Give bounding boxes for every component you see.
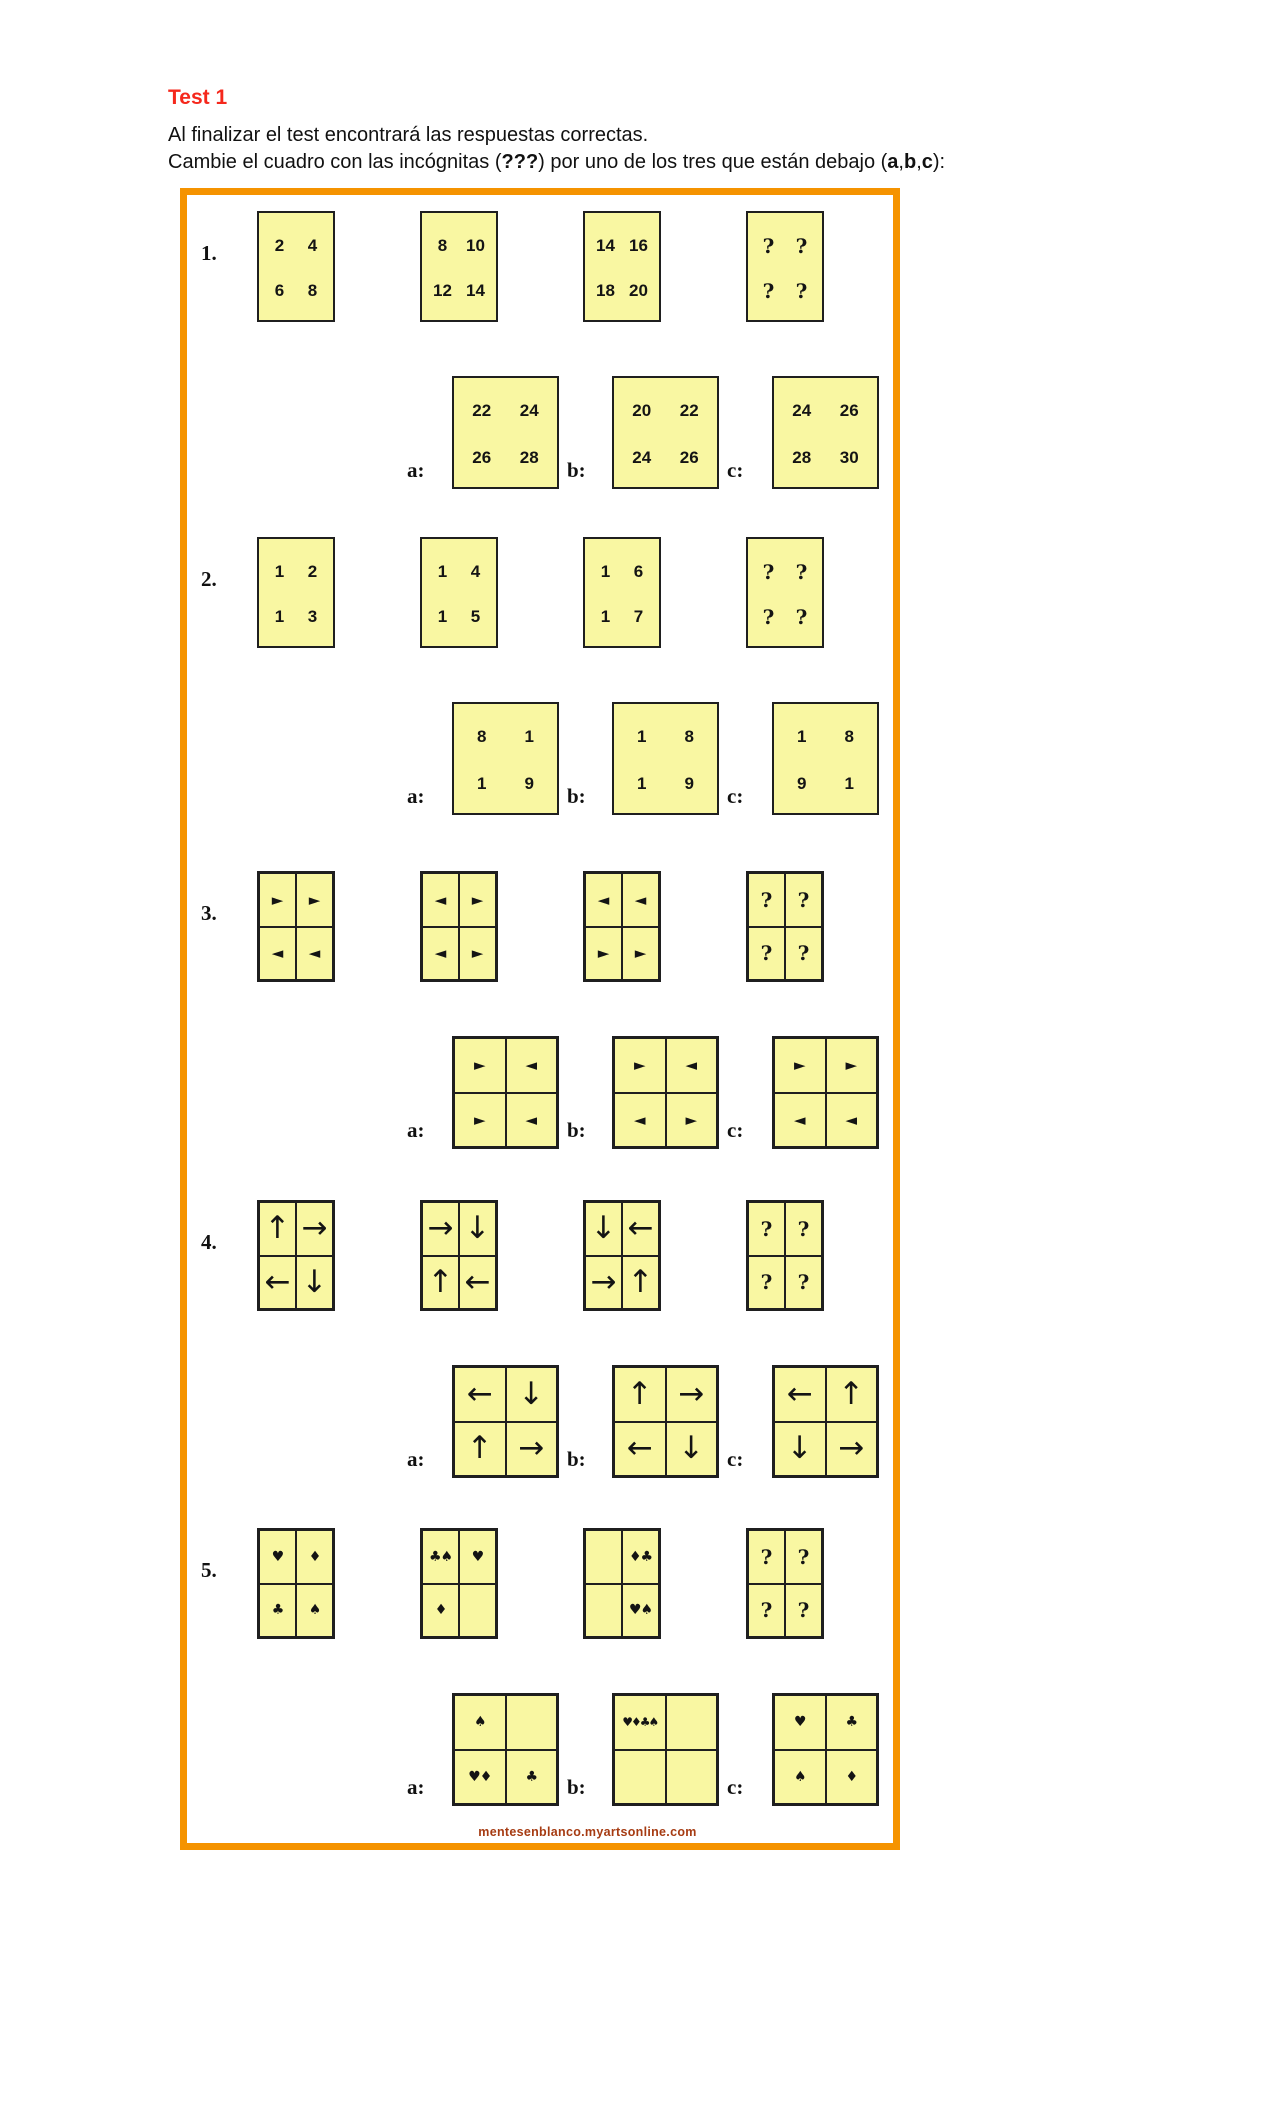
option-label: c: xyxy=(727,1775,767,1800)
grid-cell: ← xyxy=(454,1367,506,1422)
grid-cell: ? xyxy=(785,223,818,269)
grid-cell: ? xyxy=(752,269,785,315)
grid-cell: 14 xyxy=(459,269,492,315)
sequence-grid: ►►◄◄ xyxy=(257,871,335,982)
grid-cell: 30 xyxy=(826,435,874,482)
grid-cell: ► xyxy=(454,1038,506,1093)
sequence-grid: ↑→←↓ xyxy=(257,1200,335,1311)
grid-cell: ? xyxy=(785,1256,822,1310)
sequence-grid: ↓←→↑ xyxy=(583,1200,661,1311)
option-label: c: xyxy=(727,784,767,809)
instruction-line2-post: ): xyxy=(933,151,945,173)
grid-cell: ◄ xyxy=(506,1093,558,1148)
grid-cell: ► xyxy=(622,927,659,981)
grid-cell: ♣ xyxy=(259,1584,296,1638)
grid-cell: 2 xyxy=(296,549,329,595)
grid-cell: 1 xyxy=(618,761,666,808)
grid-cell: ♠ xyxy=(774,1750,826,1805)
puzzle-4: 4.↑→←↓→↓↑←↓←→↑????a:←↓↑→b:↑→←↓c:←↑↓→ xyxy=(187,1200,893,1478)
option-grid: ►►◄◄ xyxy=(772,1036,879,1149)
grid-cell: 8 xyxy=(426,223,459,269)
option-grid: 24262830 xyxy=(772,376,879,489)
letter-c: c xyxy=(922,151,933,173)
grid-cell: ? xyxy=(748,1256,785,1310)
grid-cell: ► xyxy=(296,873,333,927)
grid-cell xyxy=(666,1695,718,1750)
unknowns-marker: ??? xyxy=(502,151,539,173)
option-label: a: xyxy=(407,1775,447,1800)
grid-cell: ♦♣ xyxy=(622,1530,659,1584)
option-label: c: xyxy=(727,1447,767,1472)
puzzle-number: 4. xyxy=(201,1230,217,1255)
grid-cell: ► xyxy=(459,927,496,981)
grid-cell xyxy=(585,1530,622,1584)
grid-cell: 20 xyxy=(622,269,655,315)
grid-cell: ← xyxy=(774,1367,826,1422)
grid-cell: ◄ xyxy=(614,1093,666,1148)
grid-cell: ↓ xyxy=(666,1422,718,1477)
option-label: b: xyxy=(567,458,607,483)
option-label: a: xyxy=(407,1118,447,1143)
grid-cell: 6 xyxy=(263,269,296,315)
grid-cell: 4 xyxy=(296,223,329,269)
grid-cell: 24 xyxy=(778,388,826,435)
grid-cell: ? xyxy=(748,1202,785,1256)
grid-cell: ↑ xyxy=(259,1202,296,1256)
grid-cell: ↑ xyxy=(422,1256,459,1310)
grid-cell: 18 xyxy=(589,269,622,315)
option-grid: 22242628 xyxy=(452,376,559,489)
grid-cell: 1 xyxy=(589,549,622,595)
grid-cell: 1 xyxy=(426,549,459,595)
grid-cell: ◄ xyxy=(585,873,622,927)
grid-cell xyxy=(614,1750,666,1805)
grid-cell: 3 xyxy=(296,595,329,641)
option-grid: ↑→←↓ xyxy=(612,1365,719,1478)
sequence-grid: 14161820 xyxy=(583,211,661,322)
grid-cell: ◄ xyxy=(259,927,296,981)
grid-cell: 24 xyxy=(506,388,554,435)
grid-cell: ? xyxy=(752,549,785,595)
puzzle-1: 1.2468810121414161820????a:22242628b:202… xyxy=(187,211,893,489)
grid-cell: ? xyxy=(785,1584,822,1638)
grid-cell: ← xyxy=(622,1202,659,1256)
grid-cell: 9 xyxy=(778,761,826,808)
grid-cell: 8 xyxy=(458,714,506,761)
grid-cell: 26 xyxy=(826,388,874,435)
puzzle-3: 3.►►◄◄◄►◄►◄◄►►????a:►◄►◄b:►◄◄►c:►►◄◄ xyxy=(187,871,893,1149)
grid-cell: 26 xyxy=(666,435,714,482)
grid-cell: ← xyxy=(614,1422,666,1477)
grid-cell: ♥ xyxy=(459,1530,496,1584)
grid-cell: ♥ xyxy=(774,1695,826,1750)
sequence-grid: 2468 xyxy=(257,211,335,322)
grid-cell: 6 xyxy=(622,549,655,595)
instruction-line-2: Cambie el cuadro con las incógnitas (???… xyxy=(168,149,945,176)
instruction-line-1: Al finalizar el test encontrará las resp… xyxy=(168,122,945,149)
grid-cell: ↑ xyxy=(826,1367,878,1422)
grid-cell: 1 xyxy=(826,761,874,808)
grid-cell: ► xyxy=(259,873,296,927)
grid-cell: 8 xyxy=(666,714,714,761)
grid-cell: ↑ xyxy=(622,1256,659,1310)
grid-cell: ♦ xyxy=(422,1584,459,1638)
question-grid: ???? xyxy=(746,1200,824,1311)
grid-cell: ♣ xyxy=(506,1750,558,1805)
grid-cell: 16 xyxy=(622,223,655,269)
sequence-grid: ♥♦♣♠ xyxy=(257,1528,335,1639)
grid-cell: 5 xyxy=(459,595,492,641)
grid-cell: 1 xyxy=(589,595,622,641)
instruction-line2-mid: ) por uno de los tres que están debajo ( xyxy=(538,151,887,173)
sequence-grid: ♦♣♥♠ xyxy=(583,1528,661,1639)
sequence-grid: 8101214 xyxy=(420,211,498,322)
grid-cell: 22 xyxy=(458,388,506,435)
option-grid: 20222426 xyxy=(612,376,719,489)
grid-cell: ? xyxy=(752,595,785,641)
grid-cell: ► xyxy=(774,1038,826,1093)
sequence-grid: ◄►◄► xyxy=(420,871,498,982)
option-label: b: xyxy=(567,784,607,809)
instruction-line2-pre: Cambie el cuadro con las incógnitas ( xyxy=(168,151,502,173)
option-label: c: xyxy=(727,458,767,483)
grid-cell: ◄ xyxy=(622,873,659,927)
option-grid: ←↓↑→ xyxy=(452,1365,559,1478)
grid-cell: → xyxy=(585,1256,622,1310)
grid-cell: → xyxy=(422,1202,459,1256)
grid-cell: ↓ xyxy=(296,1256,333,1310)
grid-cell: → xyxy=(506,1422,558,1477)
grid-cell: ◄ xyxy=(666,1038,718,1093)
grid-cell: 14 xyxy=(589,223,622,269)
grid-cell: ? xyxy=(785,269,818,315)
option-label: b: xyxy=(567,1775,607,1800)
grid-cell: ? xyxy=(785,873,822,927)
option-grid: ♥♦♣♠ xyxy=(612,1693,719,1806)
grid-cell: ↓ xyxy=(459,1202,496,1256)
option-grid: ←↑↓→ xyxy=(772,1365,879,1478)
grid-cell: 1 xyxy=(263,549,296,595)
option-grid: ♠♥♦♣ xyxy=(452,1693,559,1806)
grid-cell: ↑ xyxy=(614,1367,666,1422)
question-grid: ???? xyxy=(746,537,824,648)
grid-cell: 1 xyxy=(618,714,666,761)
grid-cell: ► xyxy=(614,1038,666,1093)
grid-cell: ♥♠ xyxy=(622,1584,659,1638)
question-grid: ???? xyxy=(746,211,824,322)
puzzle-number: 5. xyxy=(201,1558,217,1583)
grid-cell: 28 xyxy=(778,435,826,482)
grid-cell xyxy=(585,1584,622,1638)
option-label: c: xyxy=(727,1118,767,1143)
grid-cell: 1 xyxy=(263,595,296,641)
grid-cell: ↑ xyxy=(454,1422,506,1477)
grid-cell: 10 xyxy=(459,223,492,269)
grid-cell: ♦ xyxy=(296,1530,333,1584)
option-label: a: xyxy=(407,1447,447,1472)
puzzle-number: 2. xyxy=(201,567,217,592)
grid-cell: ? xyxy=(785,549,818,595)
option-grid: 8119 xyxy=(452,702,559,815)
grid-cell: 22 xyxy=(666,388,714,435)
grid-cell: ? xyxy=(748,1530,785,1584)
puzzle-5: 5.♥♦♣♠♣♠♥♦♦♣♥♠????a:♠♥♦♣b:♥♦♣♠c:♥♣♠♦ xyxy=(187,1528,893,1806)
option-label: a: xyxy=(407,784,447,809)
grid-cell: ♥ xyxy=(259,1530,296,1584)
grid-cell: ↓ xyxy=(774,1422,826,1477)
instructions: Al finalizar el test encontrará las resp… xyxy=(168,122,945,176)
grid-cell: 7 xyxy=(622,595,655,641)
option-grid: ►◄◄► xyxy=(612,1036,719,1149)
grid-cell: ◄ xyxy=(826,1093,878,1148)
grid-cell: 9 xyxy=(506,761,554,808)
grid-cell: 1 xyxy=(458,761,506,808)
sequence-grid: ♣♠♥♦ xyxy=(420,1528,498,1639)
option-label: b: xyxy=(567,1118,607,1143)
sequence-grid: 1617 xyxy=(583,537,661,648)
grid-cell: ? xyxy=(748,873,785,927)
grid-cell: ► xyxy=(666,1093,718,1148)
grid-cell: 24 xyxy=(618,435,666,482)
grid-cell: 1 xyxy=(778,714,826,761)
puzzle-2: 2.121314151617????a:8119b:1819c:1891 xyxy=(187,537,893,815)
grid-cell: 26 xyxy=(458,435,506,482)
grid-cell: ← xyxy=(259,1256,296,1310)
grid-cell: 20 xyxy=(618,388,666,435)
grid-cell: ◄ xyxy=(296,927,333,981)
grid-cell: ? xyxy=(785,595,818,641)
grid-cell: ↓ xyxy=(506,1367,558,1422)
grid-cell: ◄ xyxy=(774,1093,826,1148)
grid-cell: ◄ xyxy=(422,927,459,981)
option-grid: 1819 xyxy=(612,702,719,815)
sequence-grid: ◄◄►► xyxy=(583,871,661,982)
grid-cell: ↓ xyxy=(585,1202,622,1256)
letter-a: a xyxy=(887,151,898,173)
option-grid: ♥♣♠♦ xyxy=(772,1693,879,1806)
sequence-grid: 1213 xyxy=(257,537,335,648)
grid-cell: ► xyxy=(454,1093,506,1148)
watermark: mentesenblanco.myartsonline.com xyxy=(187,1825,893,1839)
grid-cell: ◄ xyxy=(506,1038,558,1093)
grid-cell: ? xyxy=(748,1584,785,1638)
grid-cell: 2 xyxy=(263,223,296,269)
puzzle-number: 1. xyxy=(201,241,217,266)
grid-cell: 4 xyxy=(459,549,492,595)
grid-cell: ♣♠ xyxy=(422,1530,459,1584)
grid-cell: ♣ xyxy=(826,1695,878,1750)
letter-b: b xyxy=(904,151,916,173)
sequence-grid: 1415 xyxy=(420,537,498,648)
grid-cell: ← xyxy=(459,1256,496,1310)
grid-cell: ♦ xyxy=(826,1750,878,1805)
test-box: mentesenblanco.myartsonline.com 1.246881… xyxy=(180,188,900,1850)
grid-cell: ► xyxy=(585,927,622,981)
grid-cell: ♠ xyxy=(454,1695,506,1750)
option-grid: 1891 xyxy=(772,702,879,815)
grid-cell: ? xyxy=(785,1202,822,1256)
grid-cell: ? xyxy=(752,223,785,269)
grid-cell: 1 xyxy=(506,714,554,761)
grid-cell xyxy=(506,1695,558,1750)
sequence-grid: →↓↑← xyxy=(420,1200,498,1311)
grid-cell: 12 xyxy=(426,269,459,315)
grid-cell: ♠ xyxy=(296,1584,333,1638)
grid-cell: 8 xyxy=(826,714,874,761)
grid-cell xyxy=(459,1584,496,1638)
grid-cell: 28 xyxy=(506,435,554,482)
grid-cell: 8 xyxy=(296,269,329,315)
puzzle-number: 3. xyxy=(201,901,217,926)
grid-cell xyxy=(666,1750,718,1805)
option-label: a: xyxy=(407,458,447,483)
question-grid: ???? xyxy=(746,871,824,982)
grid-cell: 9 xyxy=(666,761,714,808)
option-label: b: xyxy=(567,1447,607,1472)
grid-cell: → xyxy=(666,1367,718,1422)
question-grid: ???? xyxy=(746,1528,824,1639)
grid-cell: → xyxy=(296,1202,333,1256)
page-title: Test 1 xyxy=(168,86,227,110)
grid-cell: ◄ xyxy=(422,873,459,927)
grid-cell: ► xyxy=(459,873,496,927)
grid-cell: ? xyxy=(785,1530,822,1584)
grid-cell: ► xyxy=(826,1038,878,1093)
grid-cell: ? xyxy=(748,927,785,981)
grid-cell: 1 xyxy=(426,595,459,641)
grid-cell: ♥♦ xyxy=(454,1750,506,1805)
grid-cell: ? xyxy=(785,927,822,981)
grid-cell: → xyxy=(826,1422,878,1477)
grid-cell: ♥♦♣♠ xyxy=(614,1695,666,1750)
option-grid: ►◄►◄ xyxy=(452,1036,559,1149)
